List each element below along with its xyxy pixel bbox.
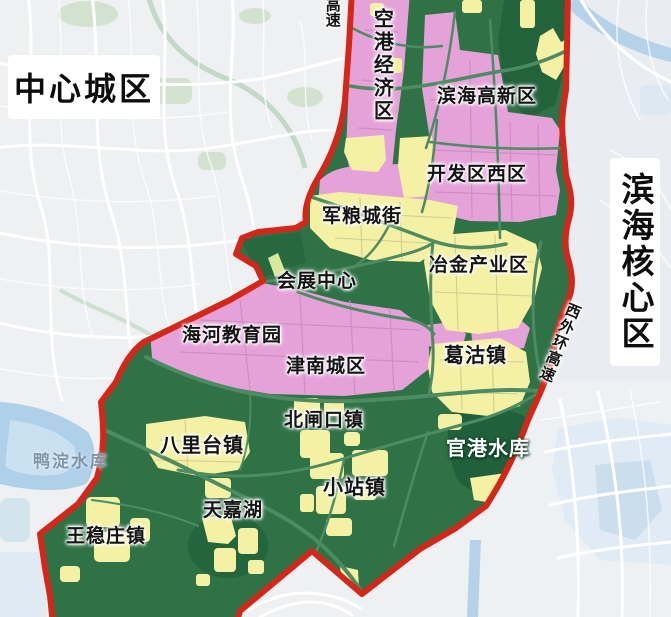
zone-label-junliangcheng: 军粮城街 <box>322 206 402 227</box>
expressway-label: 高速 <box>323 0 340 27</box>
zone-label-binhai-hightech: 滨海高新区 <box>437 86 537 107</box>
zone-label-haihe-education: 海河教育园 <box>182 325 282 346</box>
zone-label-beizhakou: 北闸口镇 <box>284 410 364 431</box>
water-left-small <box>0 498 30 542</box>
water-top-right <box>640 85 671 115</box>
planning-map: 中心城区 滨海核心区 高速 空港经济区 滨海高新区 开发区西区 军粮城街 冶金产… <box>0 0 671 617</box>
yadian-reservoir-label: 鸭淀水库 <box>33 452 109 471</box>
zone-label-balitai: 八里台镇 <box>160 435 244 457</box>
zone-label-konggang: 空港经济区 <box>370 8 392 123</box>
zone-label-wangwenzhuang: 王稳庄镇 <box>66 526 146 547</box>
zone-label-yejin: 冶金产业区 <box>429 255 529 276</box>
zone-label-tianjia-lake: 天嘉湖 <box>203 500 263 521</box>
zone-label-huizhan: 会展中心 <box>277 271 357 292</box>
water-bottom-left <box>0 552 46 617</box>
zone-label-guangang: 官港水库 <box>446 438 530 460</box>
zone-label-gegu: 葛沽镇 <box>444 345 507 367</box>
zone-label-jinnan: 津南城区 <box>286 356 366 377</box>
zone-label-kaifaqu-west: 开发区西区 <box>427 164 527 185</box>
center-city-title: 中心城区 <box>8 55 160 119</box>
binhai-core-title: 滨海核心区 <box>610 158 660 366</box>
zone-label-xiaozhan: 小站镇 <box>323 477 386 499</box>
